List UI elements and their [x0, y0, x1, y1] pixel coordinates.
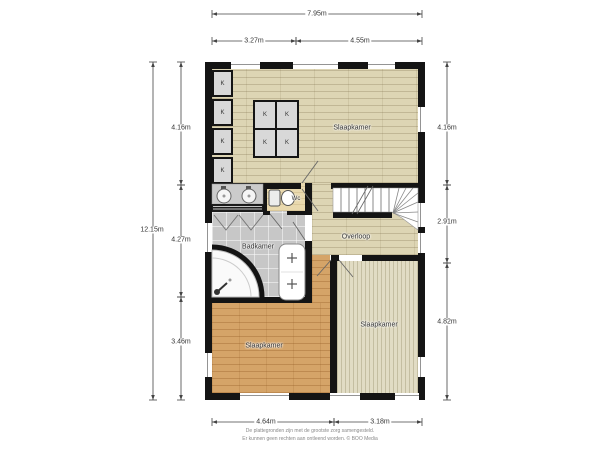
plan-graphics-overlay — [0, 0, 600, 450]
room-label-bathroom: Badkamer — [242, 244, 274, 251]
dim-top-right: 4.55m — [348, 38, 371, 45]
dim-left-total: 12.15m — [138, 227, 165, 234]
room-label-bedroom-top: Slaapkamer — [333, 125, 370, 132]
dim-top-left: 3.27m — [242, 38, 265, 45]
room-label-toilet: Wc — [292, 196, 301, 202]
room-label-bedroom-bottom-right: Slaapkamer — [360, 322, 397, 329]
floorplan-canvas: K K K K K K K K — [0, 0, 600, 450]
dim-right-upper: 4.16m — [435, 125, 458, 132]
bifold-door-icon — [214, 215, 263, 230]
footer-disclaimer-line1: De plattegronden zijn met de grootste zo… — [246, 428, 374, 434]
dim-right-middle: 2.91m — [435, 219, 458, 226]
dim-right-lower: 4.82m — [435, 319, 458, 326]
stairs-icon — [333, 186, 418, 230]
dim-left-lower: 3.46m — [169, 339, 192, 346]
dim-left-middle: 4.27m — [169, 237, 192, 244]
dim-top-total: 7.95m — [305, 11, 328, 18]
shower-icon — [212, 247, 262, 297]
dim-bottom-right: 3.18m — [368, 419, 391, 426]
room-label-bedroom-bottom-left: Slaapkamer — [245, 343, 282, 350]
footer-disclaimer-line2: Er kunnen geen rechten aan ontleend word… — [242, 436, 377, 442]
double-sink-icon — [212, 184, 263, 212]
room-label-landing: Overloop — [342, 234, 370, 241]
dim-bottom-left: 4.64m — [254, 419, 277, 426]
vanity-unit-icon — [279, 244, 305, 300]
dim-left-upper: 4.16m — [169, 125, 192, 132]
